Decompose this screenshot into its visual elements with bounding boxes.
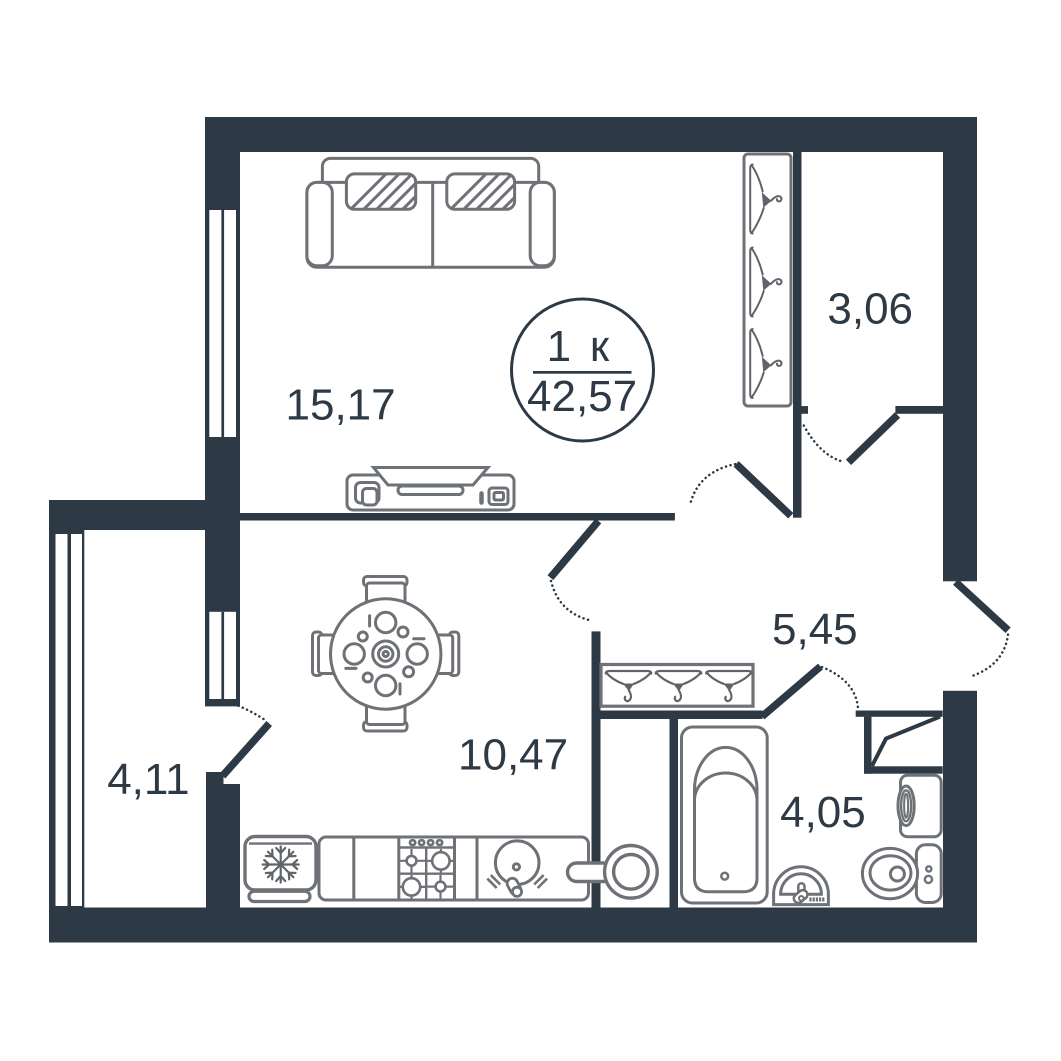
svg-text:4,05: 4,05 xyxy=(780,788,866,837)
svg-text:к: к xyxy=(590,322,610,371)
svg-text:4,11: 4,11 xyxy=(107,755,189,804)
svg-text:5,45: 5,45 xyxy=(772,605,858,654)
svg-text:42,57: 42,57 xyxy=(527,372,637,421)
svg-text:3,06: 3,06 xyxy=(827,285,913,334)
svg-text:15,17: 15,17 xyxy=(286,380,396,429)
svg-text:1: 1 xyxy=(547,322,571,371)
svg-text:10,47: 10,47 xyxy=(458,731,568,780)
